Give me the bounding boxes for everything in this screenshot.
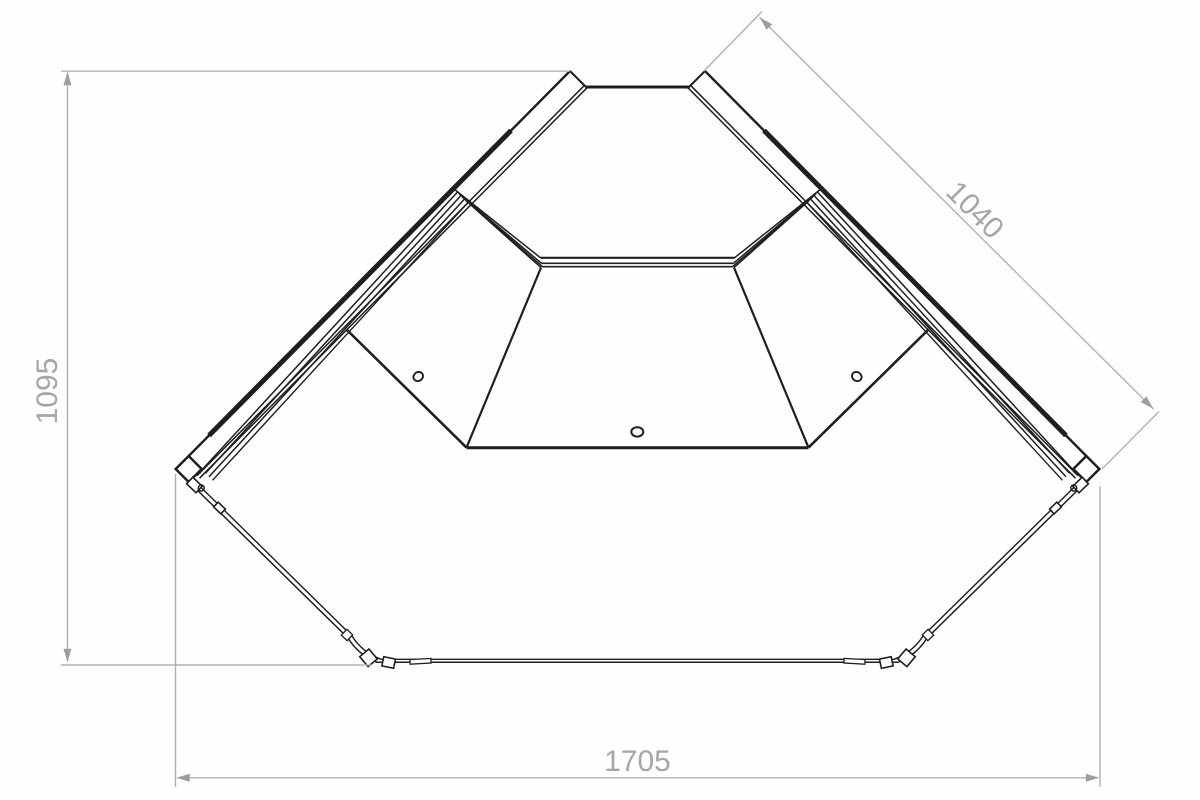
svg-text:1705: 1705 [604, 745, 671, 778]
svg-text:1095: 1095 [31, 358, 64, 425]
